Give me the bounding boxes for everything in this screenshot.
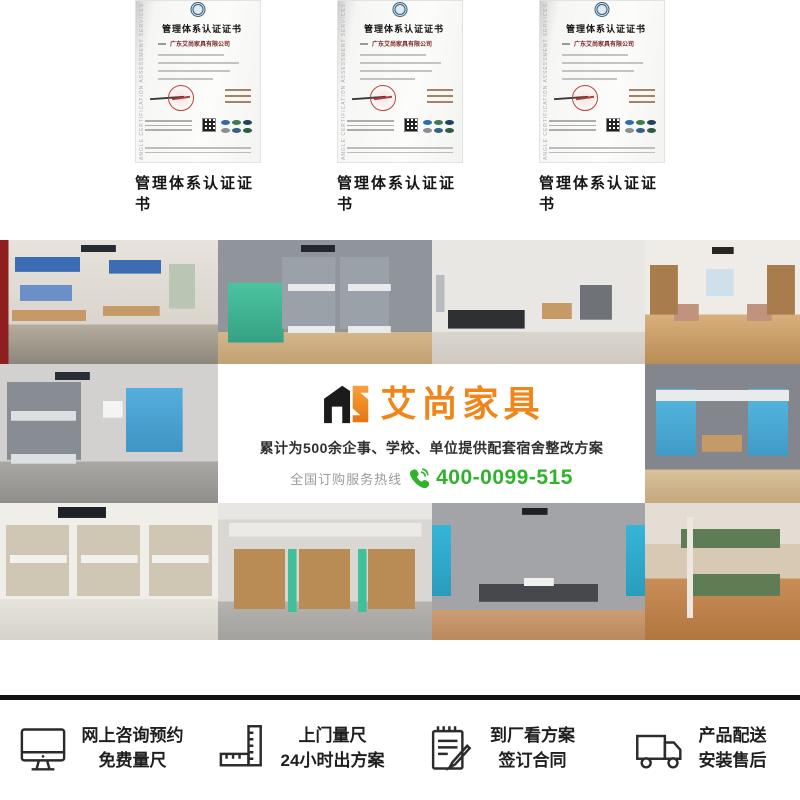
gallery-photo-1 [0, 240, 218, 364]
service-item-online-consult: 网上咨询预约 免费量尺 [0, 723, 200, 775]
certificate-footer [347, 118, 454, 144]
certificate-paper: ANGLE CERTIFICATION ASSESSMENT SERVICES … [337, 0, 463, 163]
certificate-footer [549, 118, 656, 144]
ruler-icon [216, 723, 268, 775]
spacer [0, 640, 800, 695]
hotline-row: 全国订购服务热线 400-0099-515 [290, 466, 573, 490]
gallery-photo-6 [645, 364, 800, 503]
brand-logo-icon [318, 382, 370, 426]
gallery-photo-10 [645, 503, 800, 640]
certificate-body: 广东艾尚家具有限公司 [360, 39, 452, 86]
certificate-body: 广东艾尚家具有限公司 [562, 39, 654, 86]
certificate-seal-icon [572, 85, 598, 111]
certificate-title: 管理体系认证证书 [148, 22, 256, 35]
gallery-photo-3 [432, 240, 645, 364]
truck-icon [634, 723, 686, 775]
banner-slogan: 累计为500余企事、学校、单位提供配套宿舍整改方案 [260, 438, 604, 458]
certificate-caption: 管理体系认证证书 [539, 172, 665, 214]
certificate-company: 广东艾尚家具有限公司 [170, 39, 230, 48]
service-item-onsite-measure: 上门量尺 24小时出方案 [200, 723, 400, 775]
service-line2: 24小时出方案 [281, 749, 385, 774]
certificate-emblem-icon [393, 2, 408, 17]
monitor-icon [17, 723, 69, 775]
service-line2: 签订合同 [490, 749, 575, 774]
service-line2: 免费量尺 [82, 749, 184, 774]
certificate-paper: ANGLE CERTIFICATION ASSESSMENT SERVICES … [135, 0, 261, 163]
service-item-delivery: 产品配送 安装售后 [600, 723, 800, 775]
certificate-company: 广东艾尚家具有限公司 [574, 39, 634, 48]
certificate-seal-icon [370, 85, 396, 111]
brand-banner: 艾尚家具 累计为500余企事、学校、单位提供配套宿舍整改方案 全国订购服务热线 … [218, 364, 645, 503]
hotline-label: 全国订购服务热线 [290, 469, 402, 488]
qr-code-icon [404, 118, 418, 132]
qr-code-icon [202, 118, 216, 132]
contract-icon [425, 723, 477, 775]
hotline-number[interactable]: 400-0099-515 [436, 466, 573, 490]
accreditation-badges [625, 118, 656, 134]
certificate-dates [427, 89, 453, 107]
gallery-photo-8 [218, 503, 432, 640]
gallery-photo-7 [0, 503, 218, 640]
certificate-seal-icon [168, 85, 194, 111]
service-line1: 上门量尺 [281, 724, 385, 749]
qr-code-icon [606, 118, 620, 132]
certificate-dates [225, 89, 251, 107]
gallery-section: 艾尚家具 累计为500余企事、学校、单位提供配套宿舍整改方案 全国订购服务热线 … [0, 240, 800, 640]
service-line2: 安装售后 [699, 749, 767, 774]
service-item-contract: 到厂看方案 签订合同 [400, 723, 600, 775]
certificate-title: 管理体系认证证书 [552, 22, 660, 35]
certificate-caption: 管理体系认证证书 [337, 172, 463, 214]
gallery-photo-2 [218, 240, 432, 364]
service-line1: 到厂看方案 [490, 724, 575, 749]
service-line1: 网上咨询预约 [82, 724, 184, 749]
certificate-legal-lines [549, 147, 655, 156]
certificate-legal-lines [145, 147, 251, 156]
brand-name: 艾尚家具 [380, 386, 544, 422]
certificate-title: 管理体系认证证书 [350, 22, 458, 35]
brand-logo: 艾尚家具 [318, 379, 544, 429]
certificate-dates [629, 89, 655, 107]
page: ANGLE CERTIFICATION ASSESSMENT SERVICES … [0, 0, 800, 800]
certificate-2: ANGLE CERTIFICATION ASSESSMENT SERVICES … [337, 0, 463, 240]
certificate-footer [145, 118, 252, 144]
certificate-emblem-icon [191, 2, 206, 17]
certificate-1: ANGLE CERTIFICATION ASSESSMENT SERVICES … [135, 0, 261, 240]
gallery-photo-5 [0, 364, 218, 503]
certificate-body: 广东艾尚家具有限公司 [158, 39, 250, 86]
certificate-3: ANGLE CERTIFICATION ASSESSMENT SERVICES … [539, 0, 665, 240]
service-line1: 产品配送 [699, 724, 767, 749]
services-section: 网上咨询预约 免费量尺 上门量尺 24小时出方案 [0, 695, 800, 795]
certificate-emblem-icon [595, 2, 610, 17]
certificate-legal-lines [347, 147, 453, 156]
accreditation-badges [423, 118, 454, 134]
accreditation-badges [221, 118, 252, 134]
certificate-paper: ANGLE CERTIFICATION ASSESSMENT SERVICES … [539, 0, 665, 163]
phone-icon [409, 468, 429, 488]
gallery-photo-9 [432, 503, 645, 640]
certificate-caption: 管理体系认证证书 [135, 172, 261, 214]
gallery-photo-4 [645, 240, 800, 364]
certificate-company: 广东艾尚家具有限公司 [372, 39, 432, 48]
certificates-section: ANGLE CERTIFICATION ASSESSMENT SERVICES … [0, 0, 800, 240]
